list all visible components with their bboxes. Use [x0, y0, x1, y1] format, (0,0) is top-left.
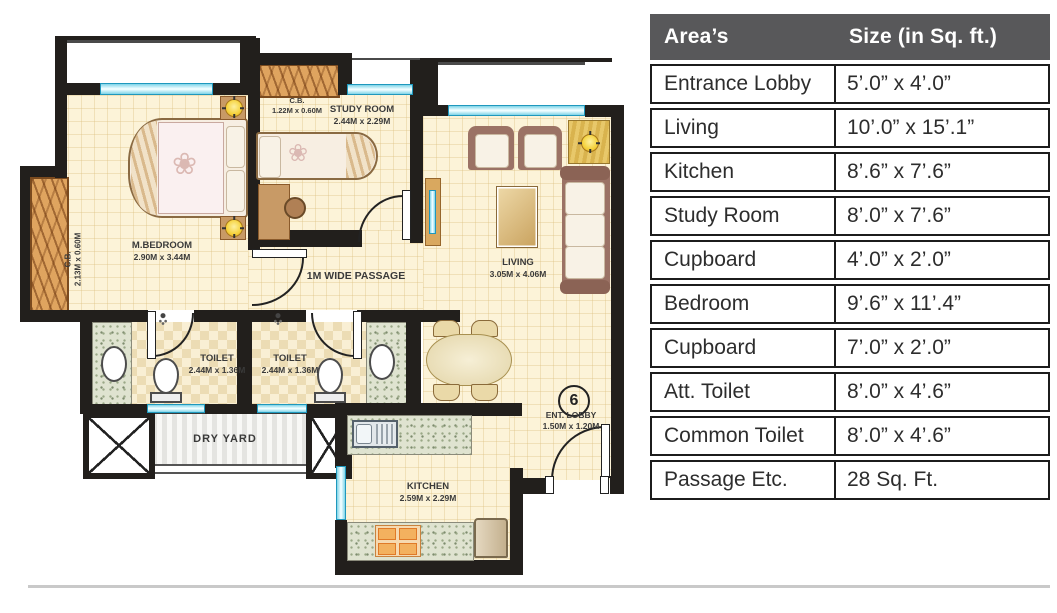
room-name: DRY YARD	[158, 432, 292, 446]
area-cell: Cupboard	[652, 330, 836, 366]
wall	[338, 84, 347, 95]
wall	[205, 404, 257, 414]
wall	[420, 58, 612, 62]
header-size-column: Size (in Sq. ft.)	[836, 25, 997, 49]
area-cell: Cupboard	[652, 242, 836, 278]
shower-icon	[157, 313, 169, 325]
wall	[55, 36, 256, 40]
room-name: TOILET	[235, 353, 345, 365]
study-room-label: STUDY ROOM 2.44M x 2.29M	[310, 104, 414, 127]
wall	[610, 476, 624, 494]
wall	[335, 415, 347, 468]
bedroom-balcony-projection	[67, 40, 240, 86]
wall	[213, 83, 240, 95]
room-name: 1M WIDE PASSAGE	[286, 270, 426, 284]
wall	[20, 166, 30, 322]
wall	[80, 322, 92, 414]
table-body: Entrance Lobby5’.0” x 4’.0”Living10’.0” …	[650, 64, 1050, 500]
armchair-cushion	[475, 134, 509, 168]
area-cell: Passage Etc.	[652, 462, 836, 498]
dining-chair	[471, 384, 498, 401]
toilet2-window	[257, 404, 307, 413]
coffee-table	[496, 186, 538, 248]
table-header: Area’s Size (in Sq. ft.)	[650, 14, 1050, 60]
size-cell: 8’.0” x 4’.6”	[836, 374, 1048, 410]
wall	[335, 560, 522, 575]
room-dims: 2.44M x 2.29M	[310, 116, 414, 127]
table-row: Kitchen8’.6” x 7’.6”	[650, 152, 1050, 192]
wall	[194, 310, 306, 322]
size-cell: 8’.0” x 4’.6”	[836, 418, 1048, 454]
table-row: Living10’.0” x 15’.1”	[650, 108, 1050, 148]
size-cell: 10’.0” x 15’.1”	[836, 110, 1048, 146]
size-cell: 8’.6” x 7’.6”	[836, 154, 1048, 190]
study-window	[347, 84, 413, 95]
sofa-armrest	[560, 166, 610, 180]
wall	[240, 38, 260, 95]
page-bottom-rule	[28, 585, 1050, 588]
wall	[423, 105, 448, 116]
area-size-table: Area’s Size (in Sq. ft.) Entrance Lobby5…	[650, 14, 1050, 500]
living-label: LIVING 3.05M x 4.06M	[466, 257, 570, 280]
wall	[307, 404, 337, 414]
sofa-cushion	[565, 182, 605, 215]
wall	[67, 83, 100, 95]
dry-yard-edge	[142, 464, 308, 474]
room-dims: 2.59M x 2.29M	[376, 493, 480, 504]
bed-pillow	[226, 170, 245, 212]
stove-burner	[378, 543, 396, 555]
sofa-armrest	[560, 280, 610, 294]
kitchen-label: KITCHEN 2.59M x 2.29M	[376, 481, 480, 504]
living-window	[448, 105, 585, 116]
room-dims: 3.05M x 4.06M	[466, 269, 570, 280]
stove-burner	[378, 528, 396, 540]
sofa-cushion	[565, 214, 605, 247]
table-row: Common Toilet8’.0” x 4’.6”	[650, 416, 1050, 456]
room-dims: 2.44M x 1.36M	[235, 365, 345, 376]
passage-label: 1M WIDE PASSAGE	[286, 270, 426, 284]
wc-tank	[314, 392, 346, 403]
bedroom-cupboard-label: C.B. 2.13M x 0.60M	[64, 199, 85, 319]
bed-floral-print: ❀	[172, 150, 197, 180]
toilet1-door-leaf	[147, 311, 156, 359]
bedside-lamp-icon	[225, 99, 243, 117]
wall	[55, 88, 67, 178]
stove-burner	[399, 528, 417, 540]
wall	[510, 478, 548, 494]
shower-icon	[272, 313, 284, 325]
wall	[80, 404, 147, 414]
entry-door-jamb	[600, 476, 609, 494]
room-dims: 2.90M x 3.44M	[102, 252, 222, 263]
bedroom-window	[100, 83, 213, 95]
stove-burner	[399, 543, 417, 555]
armchair-cushion	[524, 134, 557, 168]
washbasin	[101, 346, 127, 382]
dining-chair	[433, 384, 460, 401]
area-cell: Study Room	[652, 198, 836, 234]
table-row: Passage Etc.28 Sq. Ft.	[650, 460, 1050, 500]
bed-pillow	[226, 126, 245, 168]
table-row: Cupboard4’.0” x 2’.0”	[650, 240, 1050, 280]
wall	[240, 53, 352, 65]
kitchen-window	[336, 466, 346, 520]
size-cell: 5’.0” x 4’.0”	[836, 66, 1048, 102]
entry-door-jamb	[545, 476, 554, 494]
wall	[420, 60, 438, 107]
living-balcony-projection	[438, 62, 585, 108]
size-cell: 28 Sq. Ft.	[836, 462, 1048, 498]
study-door-leaf	[402, 190, 411, 240]
area-cell: Bedroom	[652, 286, 836, 322]
room-name: LIVING	[466, 257, 570, 269]
area-cell: Living	[652, 110, 836, 146]
wc-tank	[150, 392, 182, 403]
table-row: Entrance Lobby5’.0” x 4’.0”	[650, 64, 1050, 104]
area-cell: Att. Toilet	[652, 374, 836, 410]
table-row: Cupboard7’.0” x 2’.0”	[650, 328, 1050, 368]
room-name: M.BEDROOM	[102, 240, 222, 252]
room-name: C.B.	[64, 199, 74, 319]
size-cell: 9’.6” x 11’.4”	[836, 286, 1048, 322]
kitchen-sink-bowl	[356, 424, 372, 444]
size-cell: 4’.0” x 2’.0”	[836, 242, 1048, 278]
wall	[30, 310, 148, 322]
dining-table	[426, 334, 512, 386]
kitchen-sink-drainer	[376, 424, 394, 444]
sofa-cushion	[565, 246, 605, 279]
table-row: Att. Toilet8’.0” x 4’.6”	[650, 372, 1050, 412]
study-projection	[340, 58, 420, 86]
area-cell: Kitchen	[652, 154, 836, 190]
table-row: Bedroom9’.6” x 11’.4”	[650, 284, 1050, 324]
room-dims: 1.50M x 1.20M	[519, 421, 623, 432]
size-cell: 7’.0” x 2’.0”	[836, 330, 1048, 366]
bedside-lamp-icon	[225, 219, 243, 237]
study-bed-pillow	[259, 136, 281, 178]
header-area-column: Area’s	[650, 25, 836, 49]
floor-plan-page: ❀ ❀ M.BEDROOM	[0, 0, 1057, 613]
bedroom-label: M.BEDROOM 2.90M x 3.44M	[102, 240, 222, 263]
room-dims: 2.13M x 0.60M	[74, 199, 84, 319]
toilet2-door-leaf	[353, 311, 362, 359]
area-cell: Entrance Lobby	[652, 66, 836, 102]
toilet1-window	[147, 404, 205, 413]
bedroom-door-leaf	[252, 249, 307, 258]
dry-yard-label: DRY YARD	[158, 432, 292, 446]
wall	[55, 38, 67, 90]
entry-door-leaf	[601, 424, 610, 478]
toilet2-label: TOILET 2.44M x 1.36M	[235, 353, 345, 376]
study-chair	[284, 197, 306, 219]
study-cupboard	[258, 64, 340, 98]
study-bed-floral-print: ❀	[288, 142, 308, 166]
room-name: KITCHEN	[376, 481, 480, 493]
size-cell: 8’.0” x 7’.6”	[836, 198, 1048, 234]
table-lamp-icon	[581, 134, 599, 152]
room-name: STUDY ROOM	[310, 104, 414, 116]
duct-shaft-left	[83, 412, 155, 479]
washbasin	[369, 344, 395, 380]
refrigerator	[474, 518, 508, 558]
area-cell: Common Toilet	[652, 418, 836, 454]
tv-screen	[429, 190, 436, 234]
room-name: ENT. LOBBY	[519, 410, 623, 421]
wall	[406, 322, 421, 404]
entrance-lobby-label: ENT. LOBBY 1.50M x 1.20M	[519, 410, 623, 432]
table-row: Study Room8’.0” x 7’.6”	[650, 196, 1050, 236]
